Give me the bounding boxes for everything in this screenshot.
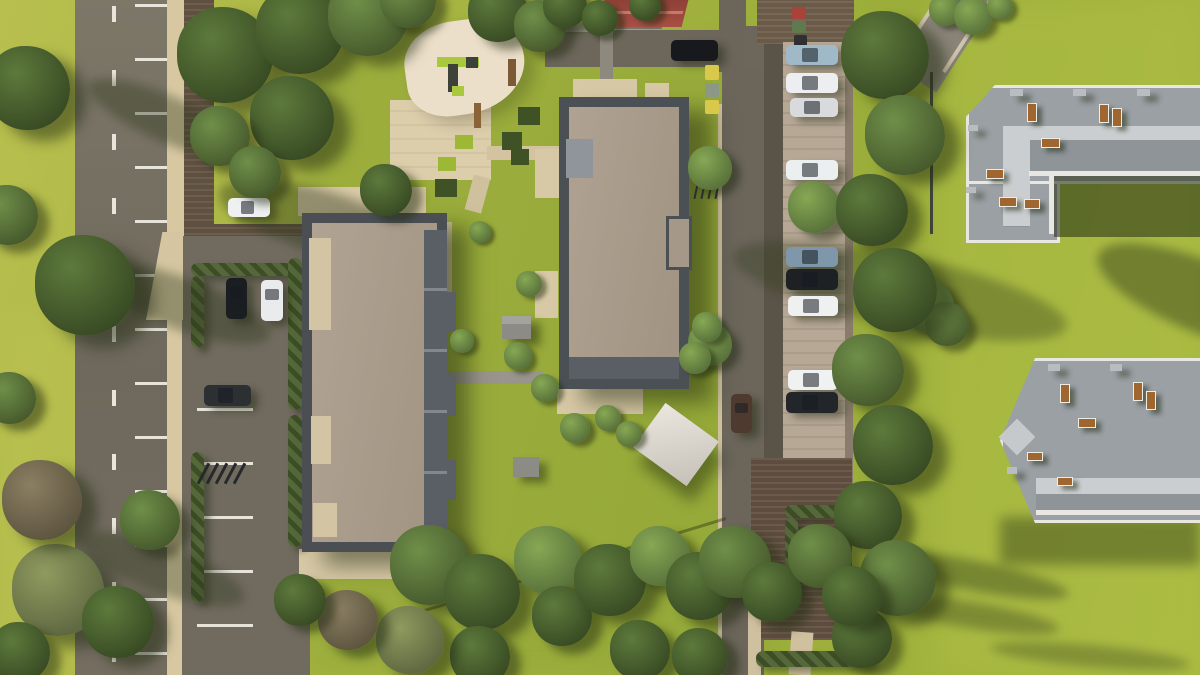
shrub-6 [616,421,642,447]
tree-east-row-3 [836,174,908,246]
car-driveway-black [671,40,718,61]
car-court-white-windshield [265,289,279,300]
tree-building2-east-1 [688,146,732,190]
shrub-7 [679,342,711,374]
buildingB-chimney-1 [1048,364,1060,371]
building1-terrace-3 [313,503,337,537]
car-court-white [261,280,283,321]
shrub-4 [560,413,590,443]
car-court-black [226,278,247,319]
shrub-1 [516,271,542,297]
recycling-bin-green [705,83,719,97]
tree-bottom-3 [514,526,582,594]
bench-plaza [474,103,481,128]
tree-east-row-5 [832,334,904,406]
car-parked-blue [786,45,838,65]
buildingA-chimney-4 [968,125,978,131]
tree-parking [788,181,840,233]
car-court-black-windshield [230,287,243,298]
shrub-8 [692,312,722,342]
building1-balcony-tab-3 [447,460,456,500]
car-parked-white-1-windshield [802,76,819,90]
car-parked-black-1 [786,269,838,290]
shrub-9 [469,221,491,243]
shrub-planter-4 [435,179,457,197]
buildingA-skylight-4 [1041,138,1060,148]
shrub-planter-3 [511,149,529,165]
buildingA-chimney-2 [1073,89,1086,96]
tree-bottom-17 [274,574,326,626]
buildingB-chimney-2 [1110,364,1122,371]
buildingA-skylight-3 [1112,108,1122,127]
buildingA-skylight-7 [1024,199,1040,209]
tree-east-row-1 [841,11,929,99]
building1-balcony-tab-1 [447,292,456,332]
car-parked-white-2-windshield [802,163,819,177]
buildingA-chimney-1 [1010,89,1023,96]
car-parked-white-2 [786,160,838,180]
buildingB-skylight-3 [1146,391,1156,410]
tree-left-3 [35,235,135,335]
shrub-2 [504,342,532,370]
building1-balcony-band [424,230,447,537]
car-lane-brown-windshield [735,403,748,413]
tree-east-row-4 [853,248,937,332]
buildingB-skylight-1 [1060,384,1070,403]
car-court-gray [204,385,251,406]
building2-bottom-band [569,357,679,379]
shed-2 [513,457,539,477]
car-parked-white-3-windshield [803,299,819,313]
car-parked-blue-windshield [802,48,819,62]
buildingB-parapet-low [1036,510,1200,515]
tree-left-5 [120,490,180,550]
buildingA-chimney-3 [1137,89,1150,96]
tree-bottom-16 [318,590,378,650]
hedge-building1-lower [288,415,302,547]
buildingA-chimney-5 [966,187,976,193]
car-street-white-windshield [241,201,254,214]
tree-bottom-11 [822,566,882,626]
car-parked-steel [786,247,838,267]
playground-slide [452,86,464,96]
recycling-bin-yellow-2 [705,100,719,114]
walkway-building2-left1 [535,149,562,198]
path-building1-building2 [443,371,543,384]
hedge-parking-horizontal [785,505,841,518]
building1-balcony-tab-2 [447,376,456,416]
car-lane-brown [731,394,752,433]
tree-top-5 [582,0,618,36]
bench-playground [508,59,516,86]
buildingA-ridge-h [1010,126,1200,140]
car-parked-silver [790,98,838,117]
shrub-10 [450,329,474,353]
buildingA-courtyard-shadow [1054,176,1200,237]
building2-balcony [666,216,692,270]
aerial-site-render [0,0,1200,675]
buildingA-skylight-1 [1027,103,1037,122]
hedge-building1-upper [288,258,302,410]
parking-bay-lines-inner [197,408,253,668]
buildingB-skylight-6 [1057,477,1073,486]
building2-terrace [566,139,593,178]
buildingB-slope-low [1036,494,1200,510]
picnic-table-2 [438,157,456,171]
shrub-planter-1 [518,107,540,125]
tree-east-row-6 [853,405,933,485]
bin-red [792,7,806,19]
playground-box [466,57,478,68]
buildingB-skylight-4 [1078,418,1096,428]
tree-bottom-12 [610,620,670,675]
car-parked-white-3 [788,296,838,316]
car-parked-white-4-windshield [803,373,819,387]
shrub-planter-2 [502,132,522,150]
car-parked-white-1 [786,73,838,93]
car-driveway-black-windshield [685,43,700,57]
building1-terrace-1 [309,238,331,330]
shed-roof-line [502,316,531,324]
building1-terrace-2 [311,416,331,464]
tree-bottom-2 [444,554,520,630]
tree-plaza [360,164,412,216]
buildingB-skylight-5 [1027,452,1043,461]
picnic-table-1 [455,135,473,149]
tree-left-bare [2,460,82,540]
buildingB-skylight-2 [1133,382,1143,401]
buildingA-skylight-5 [986,169,1004,179]
buildingA-skylight-6 [999,197,1017,207]
car-parked-black-1-windshield [802,272,819,286]
tree-bottom-15 [376,606,444,674]
tree-topleft-6 [229,146,281,198]
buildingA-skylight-2 [1099,104,1109,123]
car-court-gray-windshield [218,388,233,402]
shrub-3 [531,374,559,402]
tree-left-7 [82,586,154,658]
buildingB-lawn-shadow [1000,517,1200,565]
bin-green [792,21,806,33]
walkway-building2-top2 [645,83,669,98]
car-street-white [228,198,270,217]
car-parked-steel-windshield [802,250,819,264]
tree-east-row-2 [865,95,945,175]
buildingB-chimney-3 [1007,467,1017,474]
recycling-bin-yellow-1 [705,65,719,80]
buildingA-ridge-v [1003,126,1030,226]
car-parked-white-4 [788,370,838,390]
car-parked-silver-windshield [804,101,819,114]
car-parked-black-2 [786,392,838,413]
car-parked-black-2-windshield [802,395,819,409]
